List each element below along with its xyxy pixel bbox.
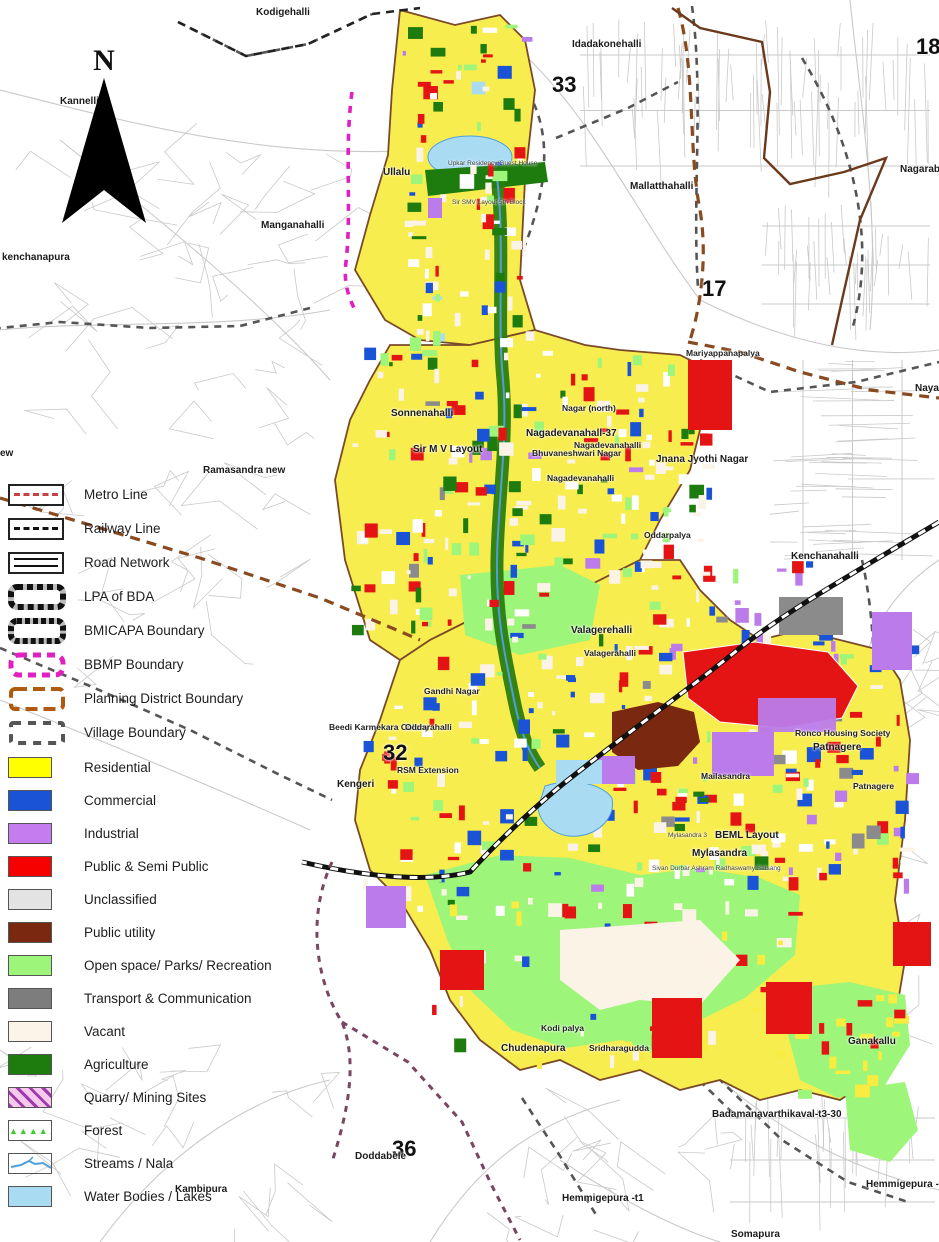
map-label: kenchanapura [2, 253, 70, 263]
legend-label: Unclassified [84, 892, 157, 907]
map-label: Sridharagudda [589, 1044, 649, 1053]
legend-label: Open space/ Parks/ Recreation [84, 958, 272, 973]
legend-area-item-7: Transport & Communication [8, 983, 338, 1013]
map-label: Ronco Housing Society [795, 729, 890, 738]
legend-label: Streams / Nala [84, 1156, 173, 1171]
legend-label: Water Bodies / Lakes [84, 1189, 212, 1204]
legend: Metro LineRailway LineRoad NetworkLPA of… [8, 480, 338, 1214]
map-label: Hemmigepura -t [866, 1180, 939, 1190]
legend-line-item-4: BMICAPA Boundary [8, 616, 338, 645]
map-label: 33 [552, 74, 576, 96]
map-label: Valagerehalli [571, 626, 632, 636]
legend-label: Transport & Communication [84, 991, 252, 1006]
legend-label: Residential [84, 760, 151, 775]
map-label: Ramasandra new [203, 466, 285, 476]
road-symbol [8, 552, 66, 574]
legend-label: Quarry/ Mining Sites [84, 1090, 206, 1105]
map-label: Chudenapura [501, 1044, 565, 1054]
map-label: Kengeri [337, 780, 374, 790]
metro-symbol [8, 484, 66, 506]
map-label: Sonnenahalli [391, 409, 453, 419]
map-label: ew [0, 449, 13, 459]
map-label: Ullalu [383, 168, 410, 178]
legend-line-item-2: Road Network [8, 548, 338, 577]
legend-area-item-10: Quarry/ Mining Sites [8, 1082, 338, 1112]
color-swatch [8, 988, 66, 1009]
compass: N [52, 44, 156, 233]
map-label: Patnagere [853, 782, 894, 791]
legend-line-item-0: Metro Line [8, 480, 338, 509]
legend-line-item-6: Planning District Boundary [8, 684, 338, 713]
legend-area-item-13: Water Bodies / Lakes [8, 1181, 338, 1211]
map-label: Oddarpalya [644, 531, 691, 540]
legend-line-item-5: BBMP Boundary [8, 650, 338, 679]
map-label: Kodi palya [541, 1024, 584, 1033]
color-swatch [8, 1153, 66, 1174]
map-label: Gandhi Nagar [424, 687, 480, 696]
map-label: Badamanavarthikaval-t3-30 [712, 1110, 842, 1120]
map-label: Somapura [731, 1230, 780, 1240]
map-label: Kodigehalli [256, 8, 310, 18]
map-label: Doddabele [355, 1152, 406, 1162]
legend-label: Public utility [84, 925, 155, 940]
map-label: Sivan Durbar Ashram Radhaswamy Satsang [652, 866, 781, 873]
map-label: Hemmigepura -t1 [562, 1194, 644, 1204]
map-label: Nagadevanahall-37 [526, 429, 617, 439]
legend-line-item-7: Village Boundary [8, 718, 338, 747]
legend-label: Agriculture [84, 1057, 149, 1072]
district-symbol [8, 686, 66, 712]
map-label: Kenchanahalli [791, 552, 859, 562]
bmicapa-symbol [8, 618, 66, 644]
map-label: Mylasandra [692, 849, 747, 859]
legend-area-item-11: ▲▲▲▲▲Forest [8, 1115, 338, 1145]
legend-area-item-3: Public & Semi Public [8, 851, 338, 881]
color-swatch [8, 1021, 66, 1042]
map-label: 17 [702, 278, 726, 300]
lpa-symbol [8, 584, 66, 610]
legend-area-item-0: Residential [8, 752, 338, 782]
village-symbol [8, 720, 66, 746]
map-label: Mallatthahalli [630, 182, 693, 192]
legend-label: LPA of BDA [84, 589, 154, 604]
railway-symbol [8, 518, 66, 540]
color-swatch [8, 856, 66, 877]
map-label: Sir M V Layout [413, 445, 482, 455]
legend-label: Metro Line [84, 487, 148, 502]
color-swatch: ▲▲▲▲▲ [8, 1120, 66, 1141]
legend-area-item-12: Streams / Nala [8, 1148, 338, 1178]
map-label: Manganahalli [261, 221, 324, 231]
bbmp-symbol [8, 652, 66, 678]
legend-label: Road Network [84, 555, 170, 570]
compass-north-label: N [52, 44, 156, 78]
legend-label: Railway Line [84, 521, 161, 536]
legend-label: Industrial [84, 826, 139, 841]
color-swatch [8, 1054, 66, 1075]
legend-area-item-8: Vacant [8, 1016, 338, 1046]
map-label: Patnagere [813, 743, 861, 753]
legend-area-item-4: Unclassified [8, 884, 338, 914]
legend-label: Vacant [84, 1024, 125, 1039]
color-swatch [8, 922, 66, 943]
color-swatch [8, 1087, 66, 1108]
map-label: Mailasandra [701, 772, 750, 781]
legend-line-item-1: Railway Line [8, 514, 338, 543]
map-label: Upkar Residency/Guest House [448, 161, 537, 168]
legend-label: Planning District Boundary [84, 691, 243, 706]
color-swatch [8, 757, 66, 778]
legend-area-item-2: Industrial [8, 818, 338, 848]
map-label: Valagerahalli [584, 649, 636, 658]
map-label: 32 [383, 742, 407, 764]
map-label: Ganakallu [848, 1037, 896, 1047]
color-swatch [8, 955, 66, 976]
color-swatch [8, 1186, 66, 1207]
legend-label: Commercial [84, 793, 156, 808]
legend-area-item-9: Agriculture [8, 1049, 338, 1079]
color-swatch [8, 823, 66, 844]
map-label: Idadakonehalli [572, 40, 641, 50]
legend-label: BBMP Boundary [84, 657, 184, 672]
north-arrow-icon [52, 78, 156, 228]
legend-area-item-5: Public utility [8, 917, 338, 947]
map-label: 18 [916, 36, 939, 58]
map-label: Oddarahalli [405, 723, 452, 732]
color-swatch [8, 790, 66, 811]
map-label: Mylasandra 3 [668, 833, 707, 840]
legend-area-item-1: Commercial [8, 785, 338, 815]
legend-label: BMICAPA Boundary [84, 623, 205, 638]
legend-area-item-6: Open space/ Parks/ Recreation [8, 950, 338, 980]
legend-label: Public & Semi Public [84, 859, 209, 874]
map-label: Nagar (north) [562, 404, 616, 413]
map-label: Nayan [915, 384, 939, 394]
map-label: Bhuvaneshwari Nagar [532, 449, 621, 458]
legend-label: Forest [84, 1123, 122, 1138]
map-label: RSM Extension [397, 766, 459, 775]
legend-label: Village Boundary [84, 725, 186, 740]
map-label: Jnana Jyothi Nagar [656, 455, 748, 465]
map-label: Sir SMV Layout 5th Block [452, 200, 526, 207]
map-label: Nagarab [900, 165, 939, 175]
color-swatch [8, 889, 66, 910]
map-label: Nagadevanahalli [547, 474, 614, 483]
map-label: BEML Layout [715, 831, 779, 841]
land-use-map-page: KodigehalliIdadakonehalli3318KannelliNag… [0, 0, 939, 1242]
map-label: Mariyappanapalya [686, 349, 760, 358]
legend-line-item-3: LPA of BDA [8, 582, 338, 611]
